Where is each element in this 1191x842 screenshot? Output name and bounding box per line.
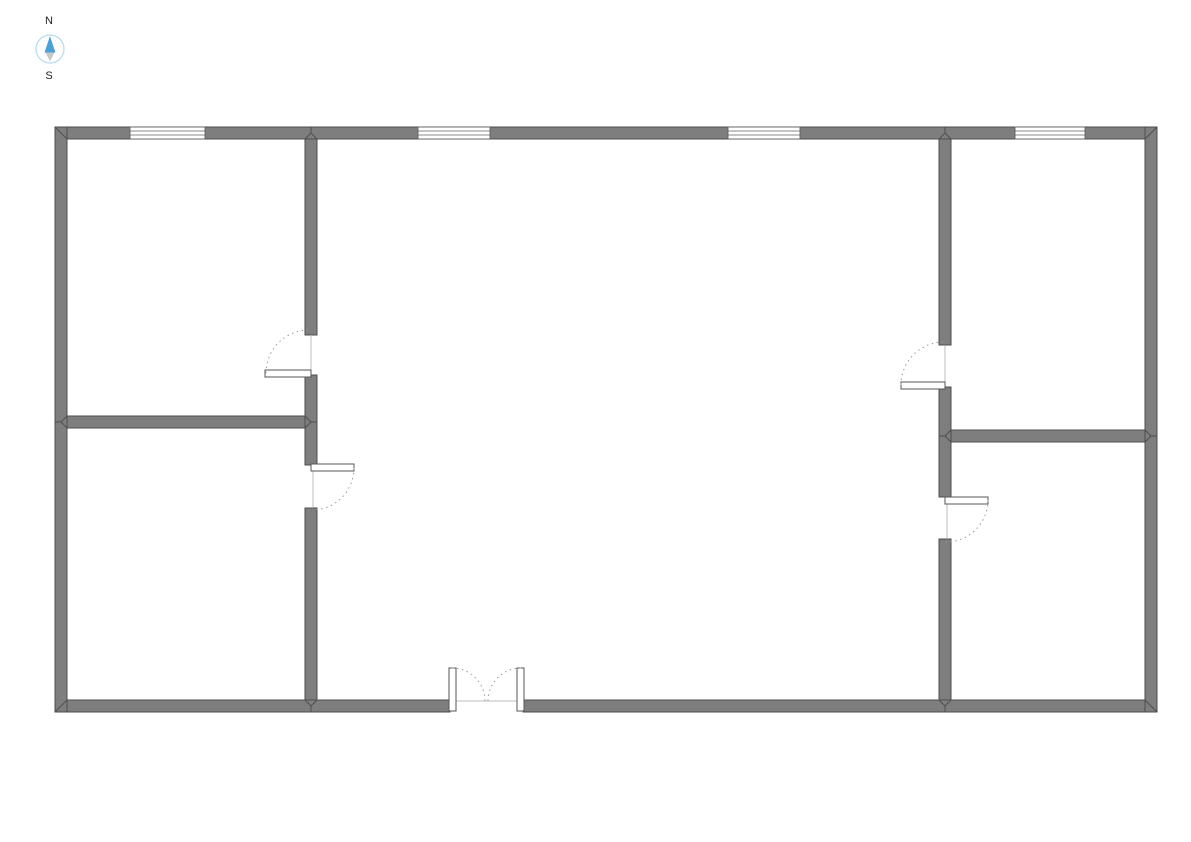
compass-north-label: N [45,15,53,27]
exterior-wall-right [1145,127,1157,712]
interior-wall-east-upper [939,139,951,345]
door-swing-southeast-room [946,500,988,542]
door-swing-southwest-room [312,468,354,510]
door-leaf-northeast-room [901,382,945,389]
exterior-wall-left [55,127,67,712]
window-north-center-east [728,127,800,139]
interior-wall-west-upper [305,139,317,335]
interior-wall-west-lower [305,508,317,700]
window-northwest [130,127,205,139]
exterior-wall-bottom-west [55,700,450,712]
interior-wall-east-lower [939,539,951,700]
door-swing-northeast-room [901,342,944,385]
door-leaf-southeast-room [945,497,988,504]
exterior-wall-bottom-east [523,700,1157,712]
interior-wall-northeast-room-south [951,430,1145,442]
compass-south-label: S [45,70,52,82]
double-door-leaf-west [449,668,456,711]
interior-wall-east-middle [939,387,951,497]
double-door-swing-east [488,668,521,701]
interior-wall-west-middle [305,375,317,465]
double-door-swing-west [452,668,485,701]
door-leaf-southwest-room [311,464,354,471]
double-door-leaf-east [517,668,524,711]
door-swing-northwest-room [266,330,309,373]
window-northeast [1015,127,1085,139]
door-leaf-northwest-room [265,370,311,377]
window-north-center-west [418,127,490,139]
floorplan-page: N S [0,0,1191,842]
plan-layer [55,127,1157,712]
compass: N S [36,15,64,82]
exterior-wall-top [55,127,1157,139]
floor-plan: N S [0,0,1191,842]
interior-wall-northwest-room-south [67,416,305,428]
